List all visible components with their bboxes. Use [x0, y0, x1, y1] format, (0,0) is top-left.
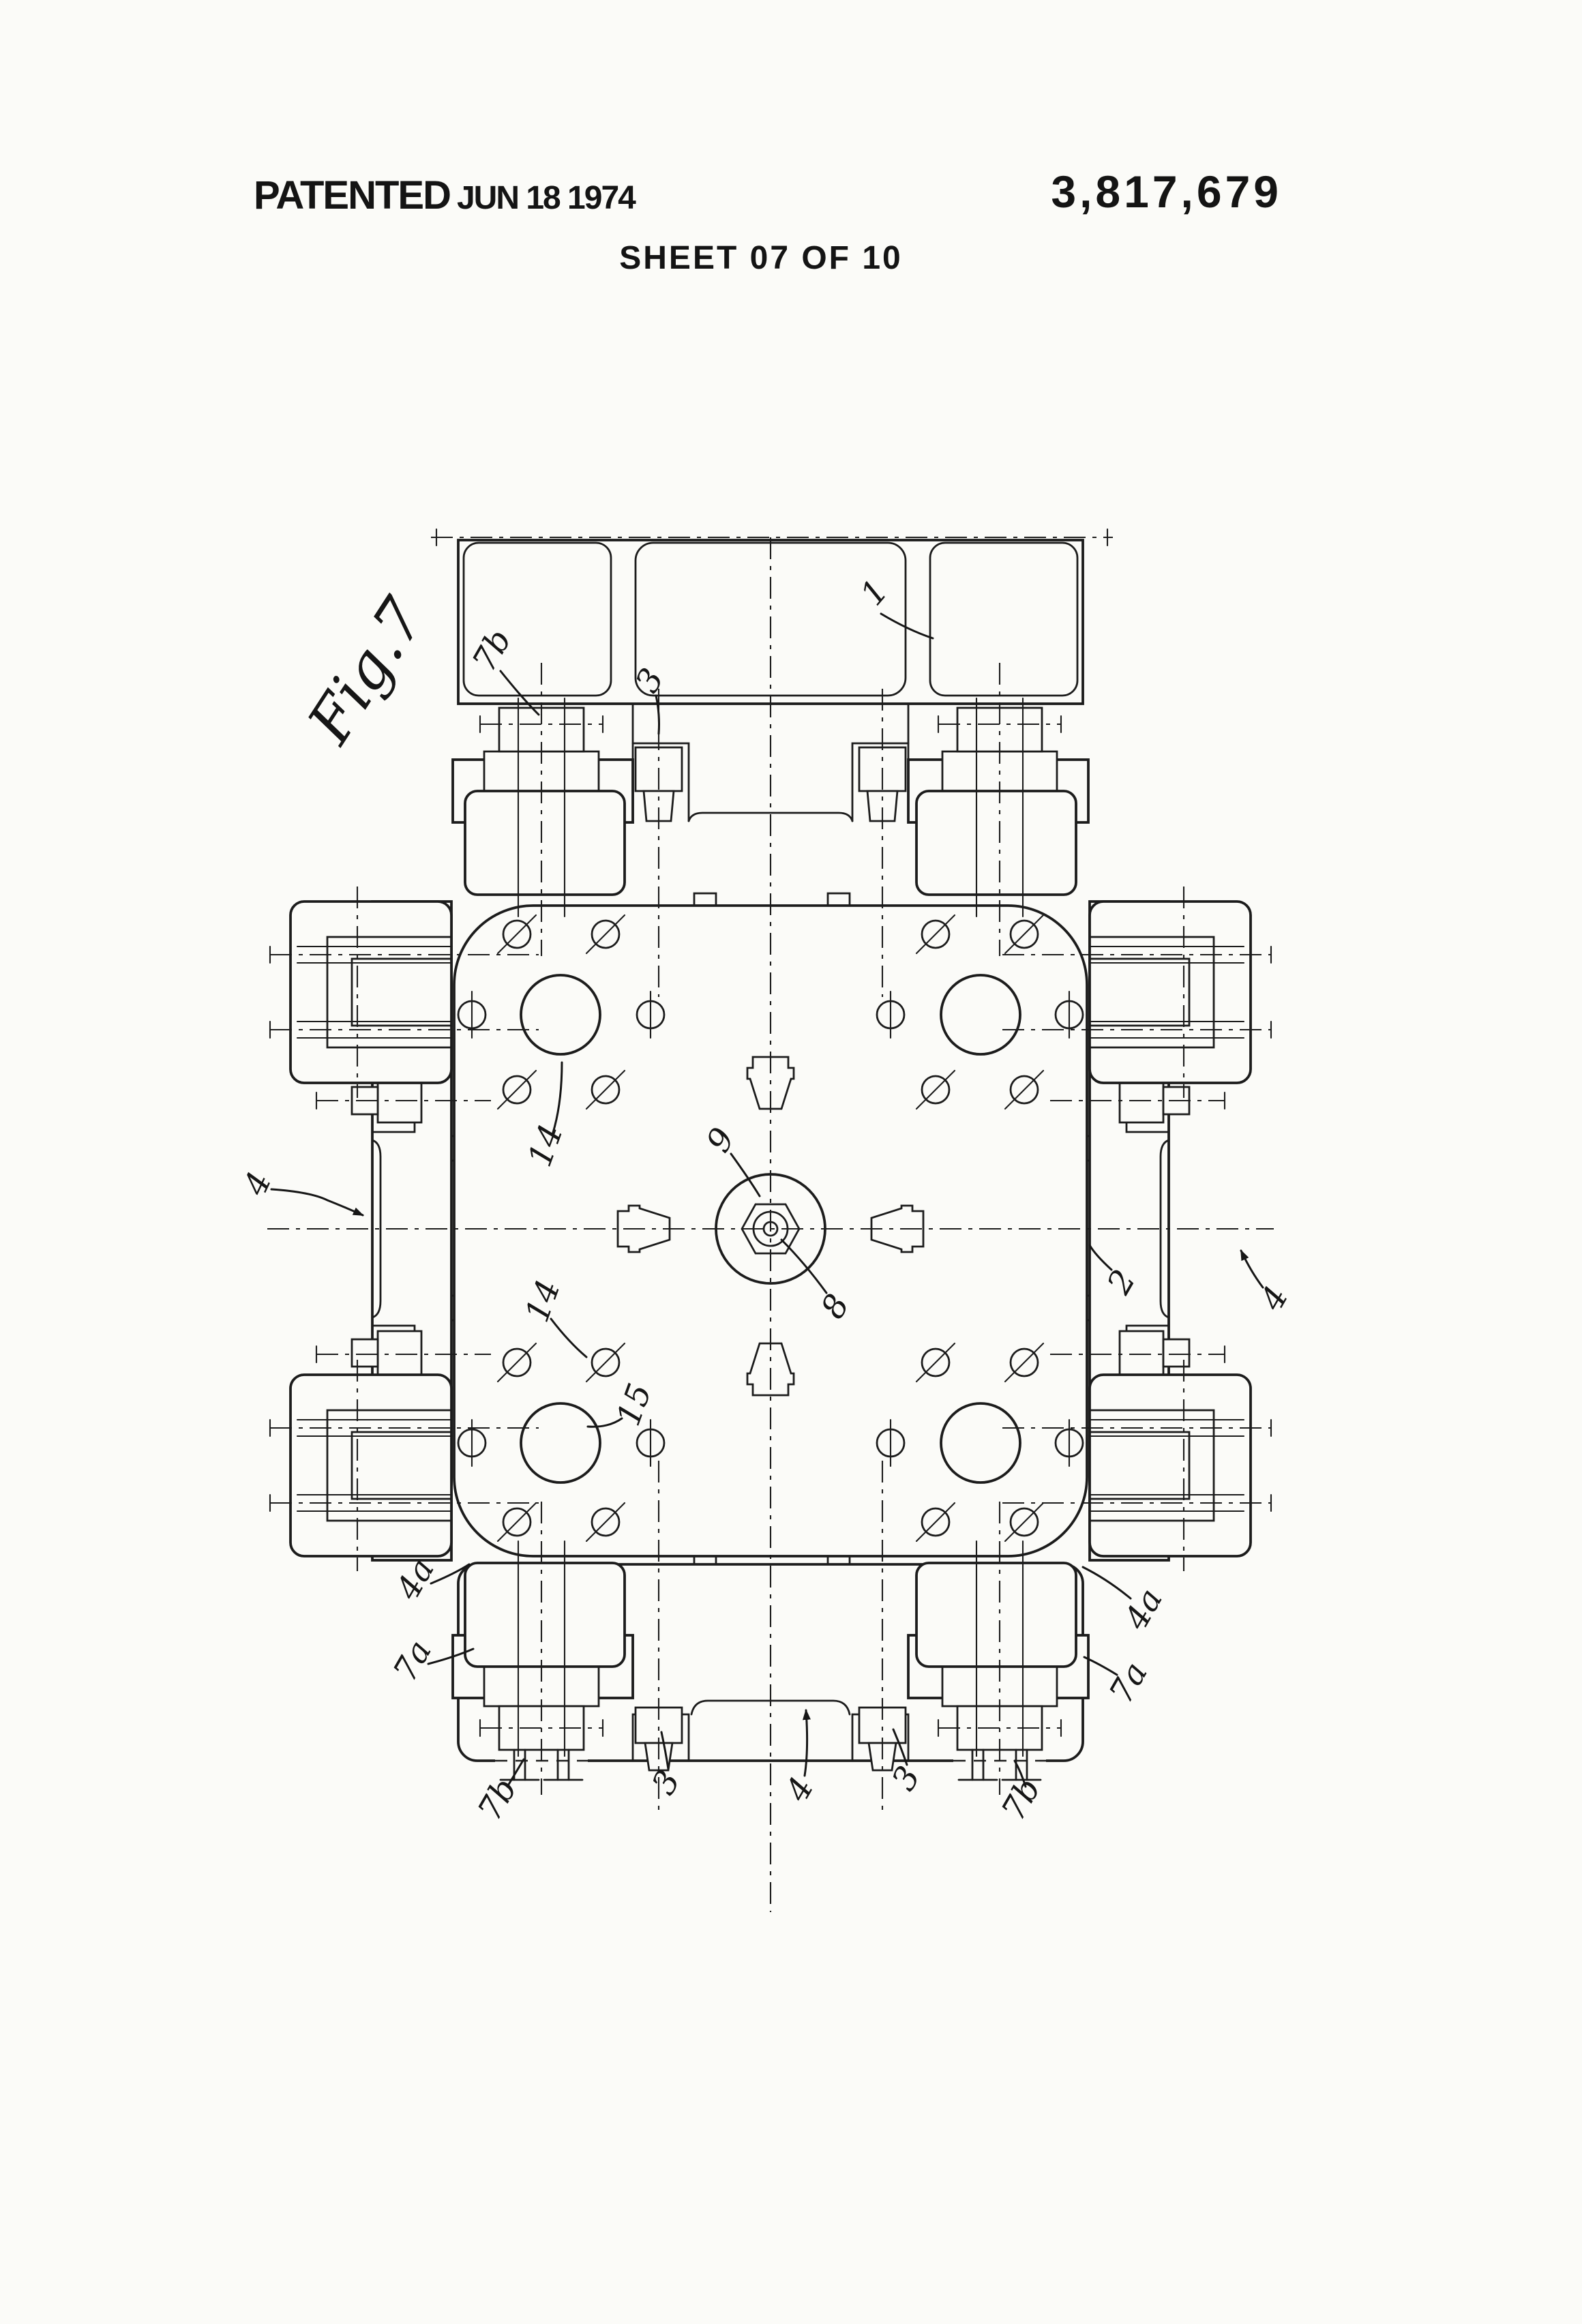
- svg-text:4: 4: [778, 1771, 822, 1808]
- ref-label-7b-bottom-left: 7b: [471, 1759, 524, 1827]
- right-bottom-clamp-block: [1090, 1375, 1251, 1556]
- figure-caption: Fig.7: [293, 586, 438, 756]
- ref-label-7a-right: 7a: [1084, 1656, 1155, 1710]
- right-top-clamp-block: [1090, 902, 1251, 1083]
- left-top-clamp-block: [290, 902, 451, 1083]
- upper-left-clamp-unit: [453, 698, 633, 917]
- right-clamp-assembly: [1090, 902, 1251, 1560]
- ref-label-4-right: 4: [1241, 1251, 1296, 1317]
- upper-right-clamp-unit: [908, 698, 1088, 917]
- sheet-info: SHEET 07 OF 10: [619, 240, 902, 276]
- ref-label-4-left: 4: [236, 1166, 363, 1215]
- left-clamp-assembly: [290, 902, 451, 1560]
- ref-label-4a-right: 4a: [1083, 1567, 1170, 1637]
- ref-label-7b-bottom-right: 7b: [994, 1761, 1048, 1827]
- svg-text:7a: 7a: [386, 1634, 439, 1688]
- svg-text:4a: 4a: [1117, 1582, 1171, 1637]
- svg-text:4: 4: [1253, 1280, 1296, 1317]
- svg-text:4: 4: [236, 1166, 280, 1202]
- patent-sheet-page: PATENTEDJUN 18 1974 3,817,679 SHEET 07 O…: [0, 0, 1582, 2324]
- patent-number: 3,817,679: [1051, 166, 1282, 217]
- left-bottom-clamp-block: [290, 1375, 451, 1556]
- svg-text:7a: 7a: [1102, 1656, 1155, 1710]
- patent-drawing-canvas: PATENTEDJUN 18 1974 3,817,679 SHEET 07 O…: [0, 0, 1582, 2324]
- patent-header: PATENTEDJUN 18 1974 3,817,679 SHEET 07 O…: [254, 166, 1282, 276]
- patented-stamp: PATENTEDJUN 18 1974: [254, 173, 636, 218]
